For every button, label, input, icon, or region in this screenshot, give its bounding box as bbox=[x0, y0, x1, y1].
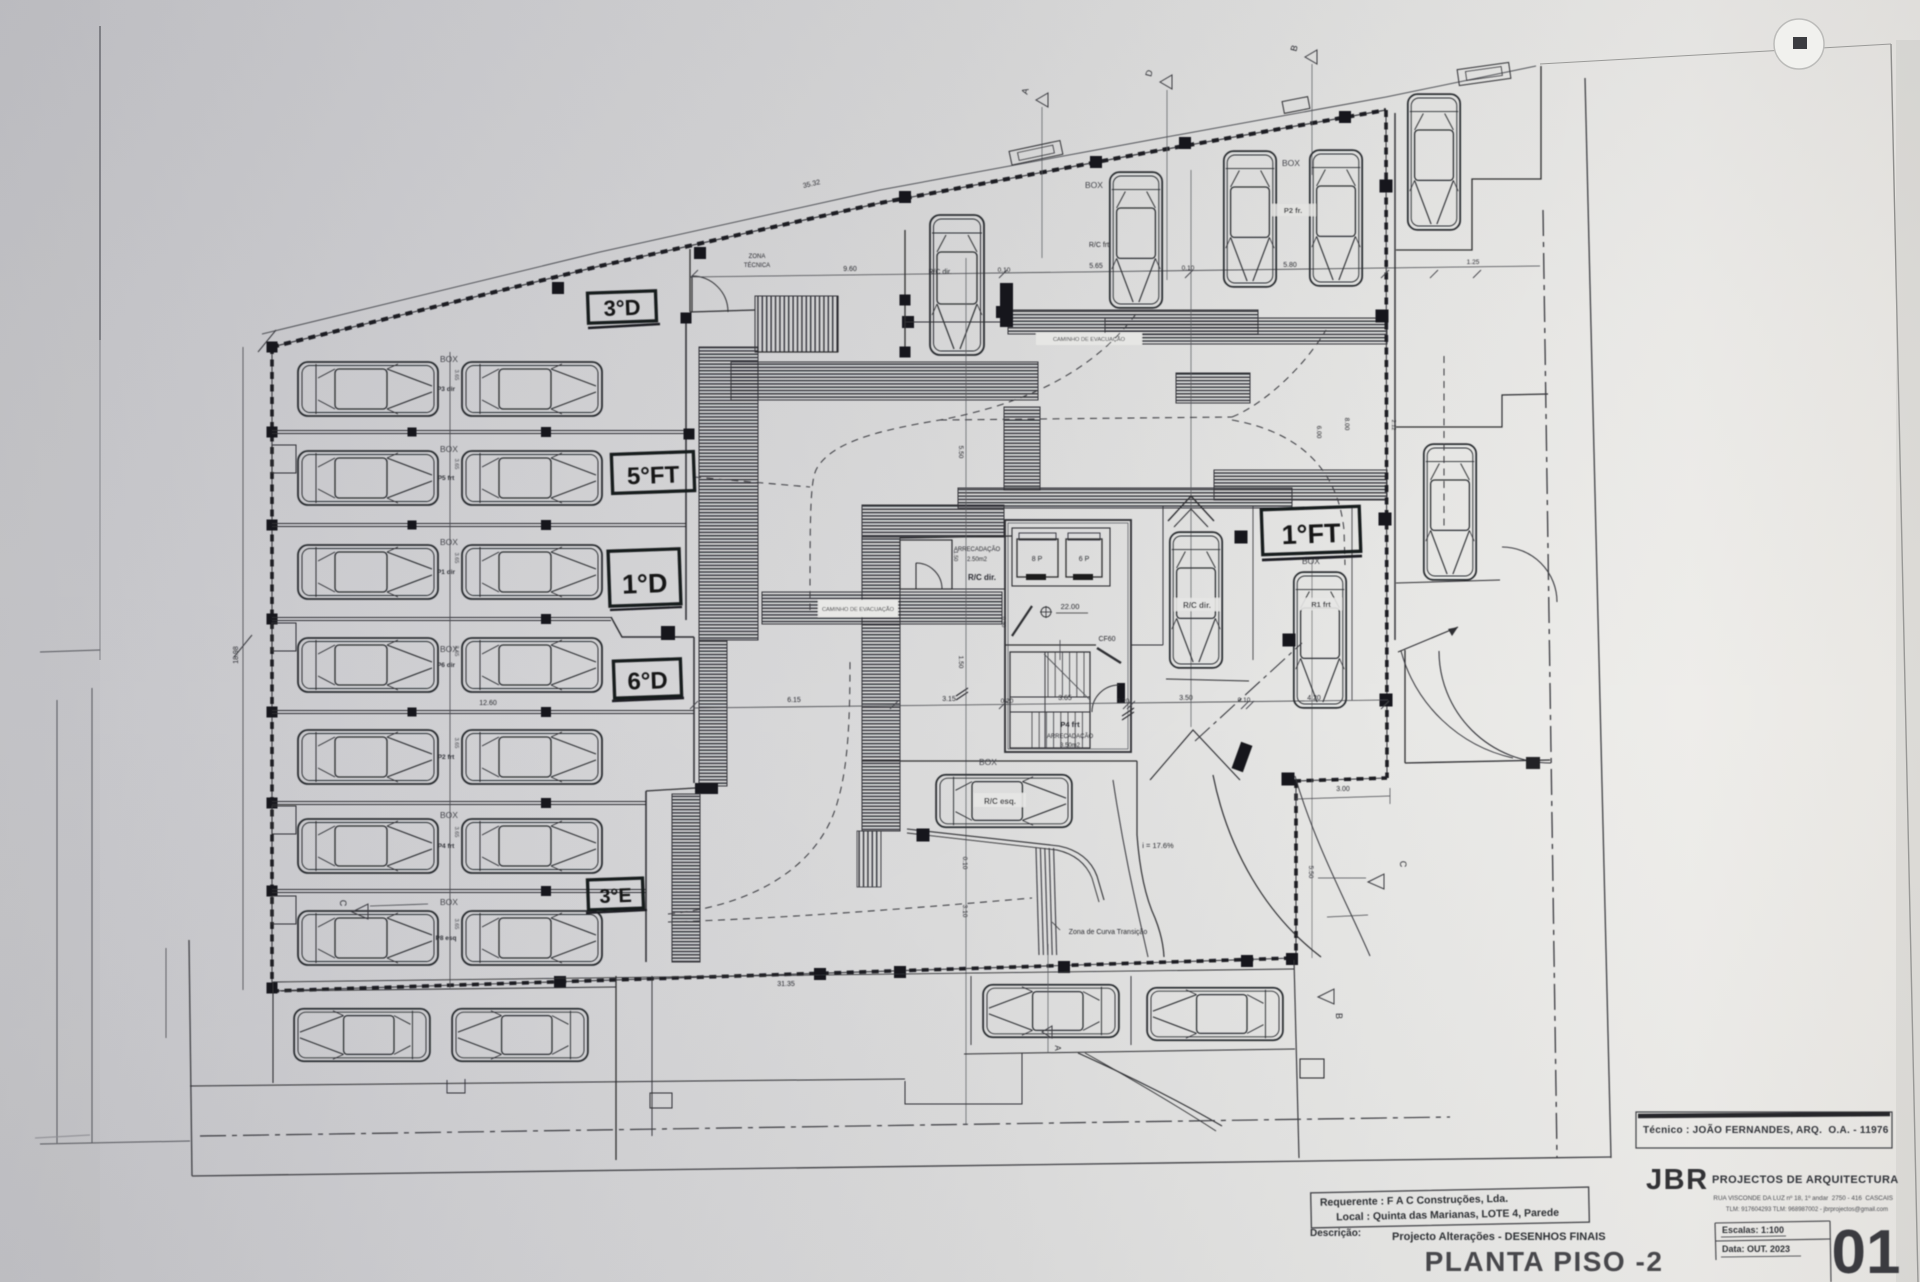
svg-text:6.15: 6.15 bbox=[787, 697, 801, 704]
svg-text:8 P: 8 P bbox=[1032, 556, 1043, 563]
svg-text:0.90: 0.90 bbox=[1000, 617, 1006, 628]
svg-text:P1 dir: P1 dir bbox=[437, 569, 456, 576]
svg-text:0.20: 0.20 bbox=[1117, 698, 1130, 705]
svg-text:3.15: 3.15 bbox=[942, 696, 956, 703]
svg-text:R/C frt: R/C frt bbox=[1089, 242, 1109, 249]
svg-text:6°D: 6°D bbox=[627, 667, 668, 695]
svg-text:5.65: 5.65 bbox=[1089, 263, 1103, 270]
svg-text:R/C dir.: R/C dir. bbox=[1183, 601, 1211, 610]
svg-text:1.25: 1.25 bbox=[1467, 259, 1480, 266]
svg-text:2.50m2: 2.50m2 bbox=[967, 557, 988, 563]
svg-text:CAMINHO DE EVACUAÇÃO: CAMINHO DE EVACUAÇÃO bbox=[822, 606, 895, 613]
svg-text:A: A bbox=[1053, 1045, 1062, 1051]
svg-text:0.10: 0.10 bbox=[998, 267, 1011, 274]
svg-text:5.50: 5.50 bbox=[1307, 866, 1314, 879]
svg-text:R/C esq.: R/C esq. bbox=[984, 797, 1016, 806]
svg-text:BOX: BOX bbox=[979, 757, 997, 767]
svg-text:BOX: BOX bbox=[1085, 180, 1103, 190]
svg-text:P4 frt: P4 frt bbox=[438, 843, 455, 850]
svg-text:BOX: BOX bbox=[440, 444, 458, 454]
svg-text:3.65: 3.65 bbox=[1058, 695, 1072, 702]
svg-text:C: C bbox=[338, 900, 348, 907]
svg-text:BOX: BOX bbox=[440, 810, 458, 820]
svg-text:R/C dir.: R/C dir. bbox=[968, 573, 996, 582]
svg-text:CF60: CF60 bbox=[1098, 636, 1115, 643]
svg-text:P3 dir: P3 dir bbox=[437, 386, 456, 393]
svg-text:5.80: 5.80 bbox=[1283, 262, 1297, 269]
svg-text:P4 frt: P4 frt bbox=[1060, 720, 1080, 729]
svg-text:R/C dir.: R/C dir. bbox=[928, 269, 951, 276]
svg-text:5°FT: 5°FT bbox=[627, 462, 681, 491]
svg-text:3.50m2: 3.50m2 bbox=[1060, 743, 1081, 749]
svg-text:3.65: 3.65 bbox=[453, 459, 459, 470]
svg-text:3.65: 3.65 bbox=[453, 919, 459, 930]
svg-text:3.00: 3.00 bbox=[1336, 786, 1350, 793]
svg-text:1.50: 1.50 bbox=[952, 551, 958, 562]
svg-text:5.50: 5.50 bbox=[957, 446, 964, 459]
svg-text:8.00: 8.00 bbox=[1343, 418, 1350, 431]
svg-text:TÉCNICA: TÉCNICA bbox=[744, 262, 770, 269]
svg-text:0.10: 0.10 bbox=[961, 857, 968, 870]
svg-text:P2 frt: P2 frt bbox=[438, 754, 455, 761]
svg-text:3.65: 3.65 bbox=[453, 738, 459, 749]
svg-text:BOX: BOX bbox=[440, 897, 458, 907]
svg-text:0.10: 0.10 bbox=[1182, 265, 1195, 272]
svg-text:1°D: 1°D bbox=[622, 568, 668, 600]
svg-text:P5 frt: P5 frt bbox=[438, 475, 455, 482]
svg-text:C: C bbox=[1398, 861, 1408, 868]
svg-text:Projecto Alterações - DESENHOS: Projecto Alterações - DESENHOS FINAIS bbox=[1392, 1231, 1606, 1243]
svg-text:3°D: 3°D bbox=[603, 295, 641, 321]
svg-text:TLM: 917604293 TLM: 968987002: TLM: 917604293 TLM: 968987002 - jbrproje… bbox=[1726, 1207, 1888, 1213]
svg-text:18.98: 18.98 bbox=[233, 646, 240, 664]
svg-text:01: 01 bbox=[1832, 1218, 1901, 1282]
svg-text:BOX: BOX bbox=[440, 537, 458, 547]
svg-text:Descrição:: Descrição: bbox=[1310, 1228, 1361, 1239]
svg-text:Zona de Curva Transição: Zona de Curva Transição bbox=[1069, 929, 1148, 936]
svg-text:ARRECADAÇÃO: ARRECADAÇÃO bbox=[954, 546, 1001, 553]
svg-text:BOX: BOX bbox=[1282, 158, 1300, 168]
svg-text:P6 dir: P6 dir bbox=[437, 662, 456, 669]
svg-text:12.60: 12.60 bbox=[479, 700, 497, 707]
svg-text:PROJECTOS DE ARQUITECTURA: PROJECTOS DE ARQUITECTURA bbox=[1712, 1174, 1899, 1186]
svg-text:i = 17.6%: i = 17.6% bbox=[1142, 841, 1174, 850]
svg-text:3.65: 3.65 bbox=[453, 553, 459, 564]
svg-text:3.65: 3.65 bbox=[453, 827, 459, 838]
svg-text:ARRECADAÇÃO: ARRECADAÇÃO bbox=[1047, 733, 1094, 740]
svg-text:6 P: 6 P bbox=[1079, 556, 1090, 563]
svg-text:4.20: 4.20 bbox=[1307, 695, 1321, 702]
svg-text:9.60: 9.60 bbox=[843, 266, 857, 273]
svg-text:PLANTA PISO -2: PLANTA PISO -2 bbox=[1425, 1246, 1664, 1277]
svg-text:31.35: 31.35 bbox=[777, 981, 795, 988]
svg-text:0.20: 0.20 bbox=[1001, 698, 1014, 705]
svg-text:22.00: 22.00 bbox=[1061, 602, 1080, 611]
svg-text:6.00: 6.00 bbox=[1315, 426, 1322, 439]
svg-text:2.12: 2.12 bbox=[1390, 420, 1396, 431]
svg-text:CAMINHO DE EVACUAÇÃO: CAMINHO DE EVACUAÇÃO bbox=[1053, 336, 1126, 343]
svg-text:B: B bbox=[1334, 1013, 1344, 1019]
svg-text:BOX: BOX bbox=[440, 354, 458, 364]
svg-text:1.50: 1.50 bbox=[957, 656, 964, 669]
svg-text:3.65: 3.65 bbox=[453, 646, 459, 657]
svg-text:3.65: 3.65 bbox=[453, 370, 459, 381]
svg-text:Técnico : JOÃO FERNANDES, ARQ.: Técnico : JOÃO FERNANDES, ARQ. O.A. - 11… bbox=[1643, 1123, 1889, 1136]
svg-text:RUA VISCONDE DA LUZ nº 18, 1º: RUA VISCONDE DA LUZ nº 18, 1º andar 2750… bbox=[1713, 1195, 1893, 1202]
svg-text:Escalas: 1:100: Escalas: 1:100 bbox=[1722, 1225, 1784, 1235]
svg-text:1°FT: 1°FT bbox=[1281, 518, 1341, 550]
svg-text:P2 fr.: P2 fr. bbox=[1284, 206, 1302, 215]
svg-text:JBR: JBR bbox=[1646, 1164, 1709, 1196]
svg-text:3.10: 3.10 bbox=[961, 905, 968, 918]
svg-text:ZONA: ZONA bbox=[749, 254, 766, 260]
svg-text:R1 frt: R1 frt bbox=[1311, 600, 1331, 609]
svg-text:3°E: 3°E bbox=[599, 885, 632, 908]
svg-text:Data: OUT. 2023: Data: OUT. 2023 bbox=[1722, 1244, 1790, 1254]
